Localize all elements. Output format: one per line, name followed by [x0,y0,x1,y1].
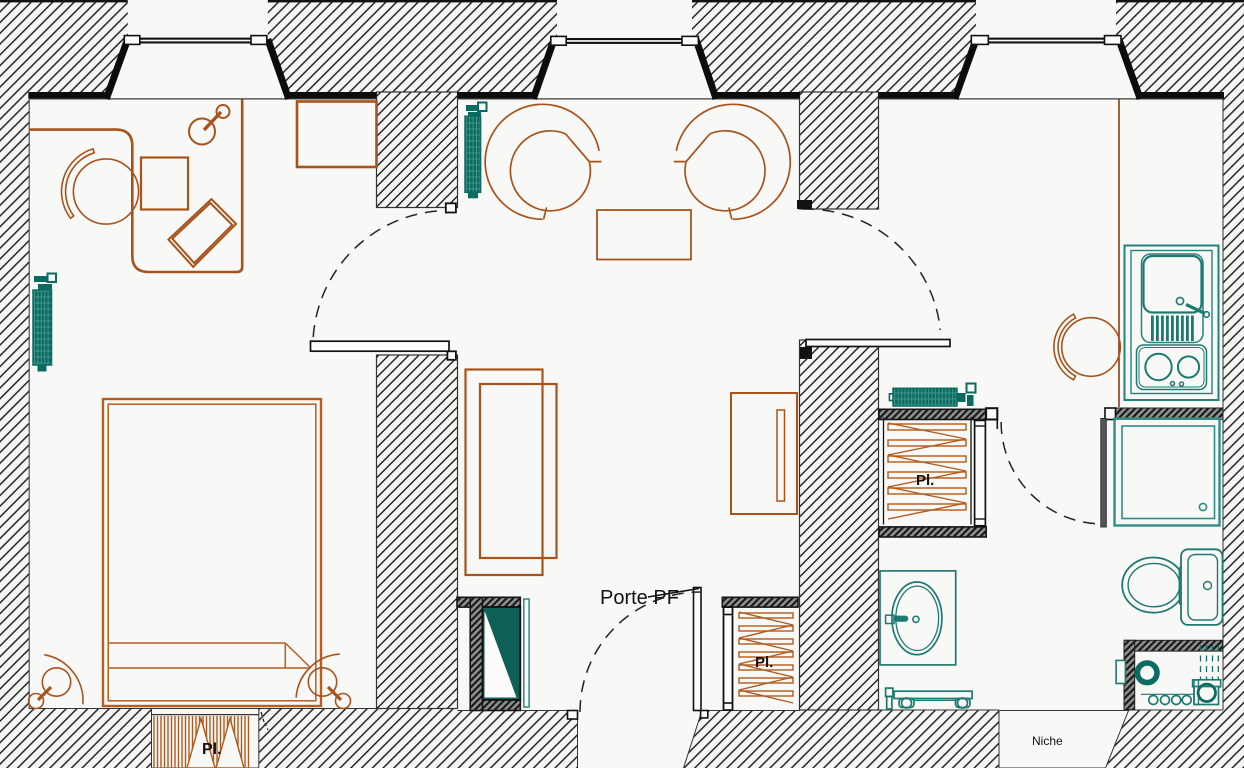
svg-text:Pl.: Pl. [202,741,222,758]
svg-text:Pl.: Pl. [755,654,773,671]
svg-text:Porte PF: Porte PF [600,587,679,609]
svg-text:Pl.: Pl. [916,472,934,489]
svg-text:Niche: Niche [1032,734,1063,748]
